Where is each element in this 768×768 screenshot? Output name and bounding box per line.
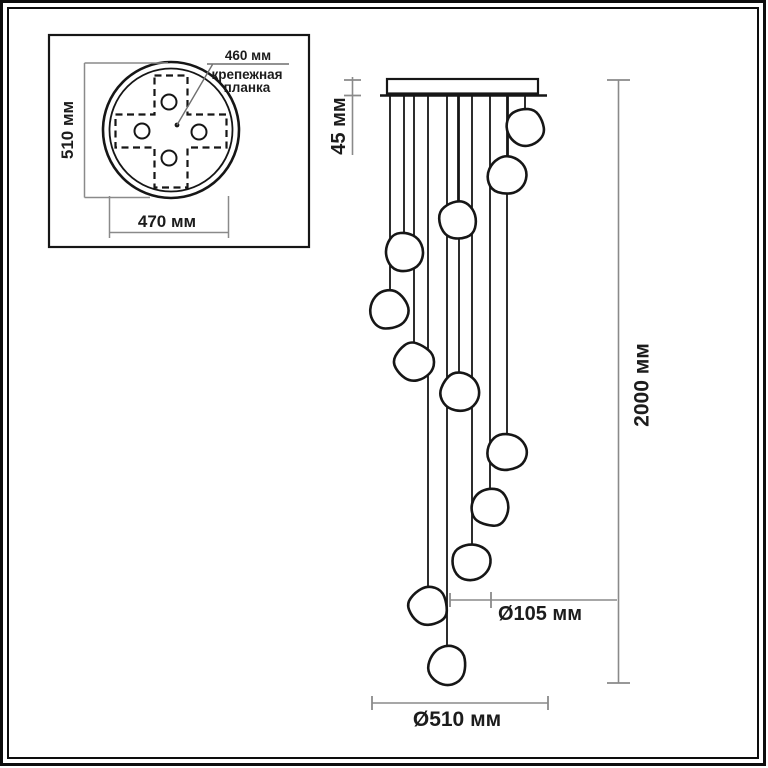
pendant-stones bbox=[370, 109, 544, 685]
fixture-side-view: 45 мм 2000 мм Ø105 мм Ø510 мм bbox=[328, 77, 653, 731]
inset-width-text: 470 мм bbox=[138, 212, 196, 231]
mounting-plate-cross bbox=[116, 76, 227, 188]
inset-height-dimension: 510 мм bbox=[58, 63, 168, 198]
screw-hole-bottom bbox=[162, 151, 177, 166]
technical-drawing-page: 460 мм крепежная планка 510 мм 470 мм bbox=[0, 0, 768, 768]
pendant-stone bbox=[507, 109, 544, 146]
pendant-diameter-text: Ø105 мм bbox=[498, 603, 582, 625]
inset-height-text: 510 мм bbox=[58, 101, 77, 159]
pendant-stone bbox=[472, 489, 509, 526]
canopy-height-text: 45 мм bbox=[328, 97, 350, 154]
pendant-stone bbox=[439, 201, 476, 238]
pendant-stone bbox=[408, 587, 447, 625]
pendant-stone bbox=[428, 646, 465, 685]
pendant-stone bbox=[487, 434, 526, 470]
canopy-plate bbox=[387, 79, 538, 94]
canopy-diameter-dimension: Ø510 мм bbox=[372, 696, 548, 731]
pendant-stone bbox=[488, 156, 527, 193]
plate-diameter-label: 460 мм bbox=[225, 48, 271, 63]
pendant-diameter-dimension: Ø105 мм bbox=[450, 592, 617, 625]
total-height-dimension: 2000 мм bbox=[607, 80, 653, 683]
pendant-stone bbox=[440, 373, 479, 411]
canopy-top-view-inset: 460 мм крепежная планка 510 мм 470 мм bbox=[49, 35, 309, 247]
pendant-stone bbox=[370, 290, 408, 328]
screw-hole-left bbox=[135, 124, 150, 139]
inset-width-dimension: 470 мм bbox=[110, 196, 229, 238]
pendant-stone bbox=[394, 342, 434, 380]
canopy-outer-circle bbox=[103, 62, 239, 198]
pendant-stone bbox=[453, 545, 491, 581]
total-height-text: 2000 мм bbox=[630, 343, 653, 427]
drawing-canvas: 460 мм крепежная планка 510 мм 470 мм bbox=[0, 0, 768, 768]
screw-hole-right bbox=[192, 125, 207, 140]
canopy-height-dimension: 45 мм bbox=[328, 77, 361, 155]
canopy-inner-circle bbox=[110, 69, 233, 192]
screw-hole-top bbox=[162, 95, 177, 110]
pendant-stone bbox=[386, 233, 423, 271]
canopy-diameter-text: Ø510 мм bbox=[413, 708, 501, 731]
plate-caption-line2: планка bbox=[224, 80, 271, 95]
